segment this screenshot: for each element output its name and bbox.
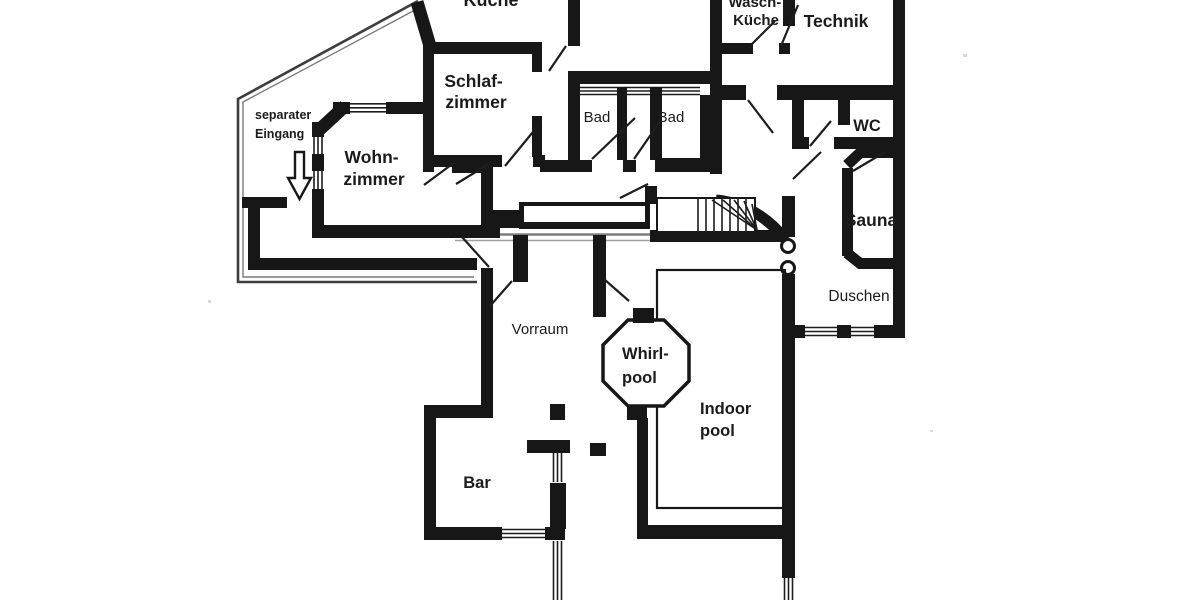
floor-plan-scan: Küche Schlaf- zimmer Bad Bad Wasch- Küch… <box>0 0 1200 600</box>
room-label-wohnzimmer: Wohn- zimmer <box>343 147 404 189</box>
annotation-separate-entrance: separater Eingang <box>255 108 315 141</box>
room-label-bad-left: Bad <box>584 109 611 126</box>
room-label-bar: Bar <box>463 474 491 492</box>
walls <box>242 0 905 578</box>
room-label-duschen: Duschen <box>828 288 889 305</box>
room-label-waschkueche: Wasch- Küche <box>729 0 786 29</box>
hallway-closet <box>519 202 650 229</box>
room-label-kueche: Küche <box>463 0 518 10</box>
room-label-indoor-pool: Indoor pool <box>700 400 756 440</box>
room-label-sauna: Sauna <box>845 210 898 230</box>
entrance-arrow-icon <box>288 152 311 199</box>
window-band-bad <box>580 86 700 96</box>
room-label-technik: Technik <box>804 11 869 31</box>
floor-plan-drawing: Küche Schlaf- zimmer Bad Bad Wasch- Küch… <box>0 0 1200 600</box>
room-label-vorraum: Vorraum <box>512 321 569 338</box>
room-label-bad-right: Bad <box>658 109 685 126</box>
room-label-schlafzimmer: Schlaf- zimmer <box>444 71 507 112</box>
stairs <box>657 198 757 232</box>
room-label-wc: WC <box>853 117 881 135</box>
